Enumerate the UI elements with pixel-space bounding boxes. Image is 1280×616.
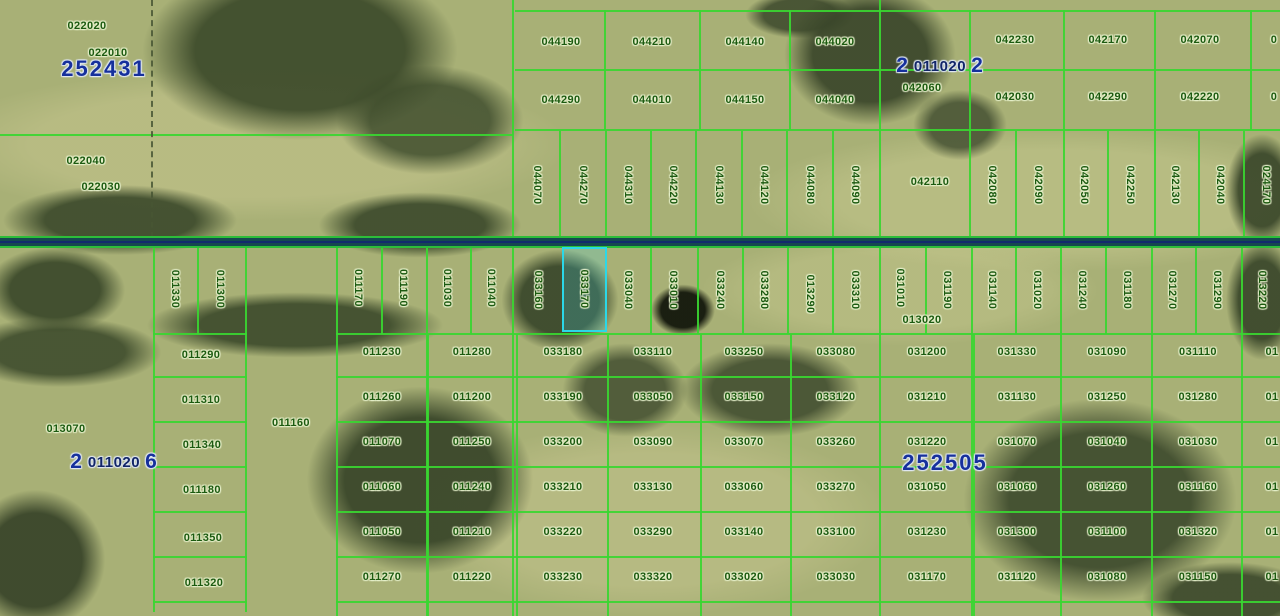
parcel-label-011240: 011240 — [453, 481, 492, 493]
parcel-line-v — [470, 248, 472, 334]
parcel-label-031190: 031190 — [941, 271, 953, 310]
parcel-label-044010: 044010 — [632, 94, 671, 106]
parcel-line-h — [153, 421, 247, 423]
parcel-line-v — [1151, 248, 1153, 616]
parcel-line-h — [153, 376, 247, 378]
section-label-252505: 252505 — [902, 450, 987, 476]
parcel-line-v — [832, 131, 834, 238]
parcel-label-031300: 031300 — [997, 526, 1036, 538]
parcel-label-033160: 033160 — [532, 270, 544, 309]
section-label-digit: 6 — [145, 450, 158, 474]
parcel-label-031110: 031110 — [1179, 346, 1217, 358]
parcel-label-042090: 042090 — [1032, 165, 1044, 204]
parcel-label-011190: 011190 — [397, 269, 409, 307]
parcel-label-044070: 044070 — [531, 165, 543, 204]
parcel-label-033060: 033060 — [724, 481, 763, 493]
parcel-label-01: 01 — [1265, 436, 1278, 448]
parcel-label-033260: 033260 — [816, 436, 855, 448]
section-label-overlay-text: 011020 — [914, 58, 966, 75]
parcel-label-033180: 033180 — [543, 346, 582, 358]
parcel-label-011230: 011230 — [363, 346, 402, 358]
parcel-label-033200: 033200 — [543, 436, 582, 448]
parcel-label-044120: 044120 — [758, 165, 770, 204]
parcel-label-022030: 022030 — [81, 181, 120, 193]
parcel-label-033130: 033130 — [633, 481, 672, 493]
parcel-line-v — [650, 248, 652, 334]
parcel-label-013070: 013070 — [46, 423, 85, 435]
parcel-label-042040: 042040 — [1214, 165, 1226, 204]
parcel-label-011220: 011220 — [453, 571, 492, 583]
parcel-label-033050: 033050 — [633, 391, 672, 403]
parcel-label-033150: 033150 — [724, 391, 763, 403]
parcel-label-033220: 033220 — [543, 526, 582, 538]
parcel-label-031130: 031130 — [998, 391, 1037, 403]
parcel-label-031020: 031020 — [1031, 270, 1043, 309]
parcel-label-031240: 031240 — [1076, 270, 1088, 309]
parcel-label-033210: 033210 — [543, 481, 582, 493]
parcel-label-013020: 013020 — [902, 314, 941, 326]
parcel-label-01: 01 — [1265, 346, 1278, 358]
parcel-line-h — [515, 10, 1280, 12]
parcel-label-033080: 033080 — [816, 346, 855, 358]
parcel-label-0: 0 — [1271, 34, 1278, 46]
parcel-label-011170: 011170 — [352, 269, 364, 307]
parcel-label-031250: 031250 — [1087, 391, 1126, 403]
parcel-line-v — [1154, 10, 1156, 238]
parcel-line-h — [515, 129, 1280, 131]
section-label-digit: 2 — [70, 450, 83, 474]
parcel-label-031060: 031060 — [997, 481, 1036, 493]
parcel-line-h — [153, 511, 247, 513]
parcel-label-033230: 033230 — [543, 571, 582, 583]
parcel-label-01: 01 — [1265, 391, 1278, 403]
parcel-line-v — [607, 334, 609, 616]
parcel-line-v — [1105, 248, 1107, 334]
parcel-label-031230: 031230 — [907, 526, 946, 538]
parcel-label-031270: 031270 — [1166, 270, 1178, 309]
parcel-label-044270: 044270 — [577, 165, 589, 204]
parcel-line-h — [336, 333, 1280, 335]
parcel-line-v — [742, 248, 744, 334]
parcel-line-v — [512, 0, 514, 616]
parcel-label-044190: 044190 — [541, 36, 580, 48]
parcel-label-031210: 031210 — [907, 391, 946, 403]
parcel-line-v — [197, 248, 199, 334]
parcel-label-031260: 031260 — [1087, 481, 1126, 493]
parcel-line-v — [1195, 248, 1197, 334]
parcel-label-013220: 013220 — [1256, 270, 1268, 309]
parcel-line-h — [336, 511, 1280, 513]
parcel-label-0: 0 — [1271, 91, 1278, 103]
parcel-label-044310: 044310 — [622, 165, 634, 204]
parcel-label-042230: 042230 — [995, 34, 1034, 46]
parcel-label-011160: 011160 — [272, 417, 310, 429]
parcel-label-033240: 033240 — [714, 270, 726, 309]
parcel-label-01: 01 — [1265, 571, 1278, 583]
parcel-label-011070: 011070 — [363, 436, 402, 448]
parcel-label-044150: 044150 — [725, 94, 764, 106]
parcel-line-v — [336, 248, 338, 616]
parcel-label-01: 01 — [1265, 526, 1278, 538]
parcel-label-044290: 044290 — [541, 94, 580, 106]
parcel-label-042080: 042080 — [986, 165, 998, 204]
parcel-label-033070: 033070 — [724, 436, 763, 448]
parcel-label-033270: 033270 — [816, 481, 855, 493]
parcel-label-011210: 011210 — [453, 526, 492, 538]
parcel-label-031010: 031010 — [894, 268, 906, 307]
parcel-label-031150: 031150 — [1179, 571, 1218, 583]
parcel-label-01: 01 — [1265, 481, 1278, 493]
parcel-line-v — [832, 248, 834, 334]
parcel-line-v — [516, 334, 518, 616]
parcel-label-011280: 011280 — [453, 346, 492, 358]
parcel-label-011250: 011250 — [453, 436, 492, 448]
parcel-label-031100: 031100 — [1088, 526, 1127, 538]
parcel-label-011040: 011040 — [485, 269, 497, 308]
parcel-line-h — [153, 333, 247, 335]
parcel-label-031220: 031220 — [907, 436, 946, 448]
parcel-label-044220: 044220 — [667, 165, 679, 204]
parcel-label-042250: 042250 — [1124, 165, 1136, 204]
parcel-label-031320: 031320 — [1178, 526, 1217, 538]
parcel-label-033310: 033310 — [849, 270, 861, 309]
parcel-line-v — [787, 248, 789, 334]
parcel-label-033280: 033280 — [758, 270, 770, 309]
parcel-label-042050: 042050 — [1078, 165, 1090, 204]
parcel-line-v — [790, 334, 792, 616]
section-label-overlapped: 20110206 — [70, 450, 158, 474]
parcel-label-031200: 031200 — [907, 346, 946, 358]
parcel-label-011300: 011300 — [214, 270, 226, 309]
parcel-label-031070: 031070 — [997, 436, 1036, 448]
parcel-line-v — [699, 10, 701, 130]
parcel-line-h — [336, 376, 1280, 378]
parcel-label-033320: 033320 — [633, 571, 672, 583]
parcel-line-v — [789, 10, 791, 130]
parcel-label-044020: 044020 — [815, 36, 854, 48]
parcel-label-011030: 011030 — [441, 269, 453, 308]
section-label-252431: 252431 — [61, 56, 146, 82]
parcel-line-v — [1015, 248, 1017, 334]
parcel-label-042220: 042220 — [1180, 91, 1219, 103]
parcel-line-h — [153, 466, 247, 468]
parcel-line-v — [1198, 131, 1200, 238]
parcel-line-v — [381, 248, 383, 334]
parcel-line-h — [153, 556, 247, 558]
parcel-label-011260: 011260 — [363, 391, 402, 403]
parcel-label-031280: 031280 — [1178, 391, 1217, 403]
parcel-label-022020: 022020 — [67, 20, 106, 32]
parcel-label-042060: 042060 — [902, 82, 941, 94]
parcel-line-v — [427, 334, 429, 616]
parcel-label-011330: 011330 — [169, 270, 181, 309]
parcel-label-044140: 044140 — [725, 36, 764, 48]
parcel-label-033100: 033100 — [816, 526, 855, 538]
parcel-label-011200: 011200 — [453, 391, 492, 403]
parcel-label-044090: 044090 — [849, 165, 861, 204]
parcel-map-view[interactable]: 0220200220100220400220300441900442100441… — [0, 0, 1280, 616]
parcel-label-044080: 044080 — [804, 165, 816, 204]
parcel-label-011050: 011050 — [363, 526, 402, 538]
parcel-line-h — [336, 601, 1280, 603]
parcel-label-031040: 031040 — [1087, 436, 1126, 448]
parcel-label-033190: 033190 — [543, 391, 582, 403]
parcel-label-024170: 024170 — [1260, 165, 1272, 204]
parcel-line-v — [695, 131, 697, 238]
parcel-line-v — [1250, 10, 1252, 130]
parcel-label-033290: 033290 — [633, 526, 672, 538]
parcel-line-v — [604, 10, 606, 130]
parcel-label-044210: 044210 — [632, 36, 671, 48]
parcel-line-v — [741, 131, 743, 238]
parcel-label-031330: 031330 — [997, 346, 1036, 358]
parcel-label-033090: 033090 — [633, 436, 672, 448]
section-label-overlay-text: 011020 — [88, 454, 140, 471]
parcel-label-031290: 031290 — [1211, 270, 1223, 309]
parcel-label-011060: 011060 — [363, 481, 402, 493]
parcel-line-v — [1060, 248, 1062, 616]
section-label-digit: 2 — [971, 54, 984, 78]
parcel-label-033030: 033030 — [816, 571, 855, 583]
parcel-label-011290: 011290 — [182, 349, 221, 361]
parcel-label-031170: 031170 — [908, 571, 947, 583]
parcel-label-044040: 044040 — [815, 94, 854, 106]
parcel-label-042290: 042290 — [1088, 91, 1127, 103]
section-dashed-line — [151, 0, 153, 238]
parcel-line-h — [336, 421, 1280, 423]
parcel-label-042130: 042130 — [1169, 165, 1181, 204]
parcel-label-033140: 033140 — [724, 526, 763, 538]
road-line — [0, 236, 1280, 248]
parcel-label-031050: 031050 — [907, 481, 946, 493]
parcel-label-031030: 031030 — [1178, 436, 1217, 448]
parcel-label-013290: 013290 — [804, 274, 816, 313]
parcel-label-033040: 033040 — [622, 270, 634, 309]
parcel-label-033020: 033020 — [724, 571, 763, 583]
parcel-line-h — [0, 134, 513, 136]
parcel-line-v — [969, 10, 971, 238]
parcel-line-v — [650, 131, 652, 238]
parcel-line-v — [879, 0, 881, 616]
parcel-label-031090: 031090 — [1087, 346, 1126, 358]
section-label-overlapped: 20110202 — [896, 54, 984, 78]
parcel-label-011270: 011270 — [363, 571, 402, 583]
parcel-label-031120: 031120 — [998, 571, 1037, 583]
parcel-line-h — [336, 466, 1280, 468]
parcel-line-v — [697, 248, 699, 334]
parcel-label-033010: 033010 — [667, 270, 679, 309]
parcel-line-v — [1063, 10, 1065, 238]
parcel-line-v — [1241, 248, 1243, 616]
parcel-label-044130: 044130 — [713, 165, 725, 204]
parcel-label-033250: 033250 — [724, 346, 763, 358]
parcel-label-011350: 011350 — [184, 532, 223, 544]
parcel-label-031080: 031080 — [1087, 571, 1126, 583]
parcel-line-v — [559, 131, 561, 238]
parcel-label-011320: 011320 — [185, 577, 224, 589]
parcel-label-033170: 033170 — [578, 269, 590, 308]
parcel-line-v — [786, 131, 788, 238]
parcel-label-011180: 011180 — [183, 484, 221, 496]
parcel-label-011310: 011310 — [182, 394, 221, 406]
parcel-label-031160: 031160 — [1179, 481, 1218, 493]
parcel-label-031140: 031140 — [986, 271, 998, 310]
parcel-label-042070: 042070 — [1180, 34, 1219, 46]
parcel-line-v — [1107, 131, 1109, 238]
parcel-label-042170: 042170 — [1088, 34, 1127, 46]
parcel-label-031180: 031180 — [1121, 271, 1133, 310]
parcel-line-v — [700, 334, 702, 616]
parcel-line-v — [1015, 131, 1017, 238]
parcel-label-033110: 033110 — [634, 346, 673, 358]
parcel-line-v — [245, 248, 247, 612]
parcel-line-v — [1243, 131, 1245, 238]
parcel-label-033120: 033120 — [816, 391, 855, 403]
parcel-label-022040: 022040 — [66, 155, 105, 167]
section-label-digit: 2 — [896, 54, 909, 78]
parcel-line-h — [153, 601, 247, 603]
parcel-line-h — [336, 556, 1280, 558]
parcel-label-042030: 042030 — [995, 91, 1034, 103]
parcel-label-042110: 042110 — [911, 176, 950, 188]
parcel-line-v — [605, 131, 607, 238]
parcel-label-011340: 011340 — [183, 439, 222, 451]
parcel-line-v — [153, 248, 155, 612]
